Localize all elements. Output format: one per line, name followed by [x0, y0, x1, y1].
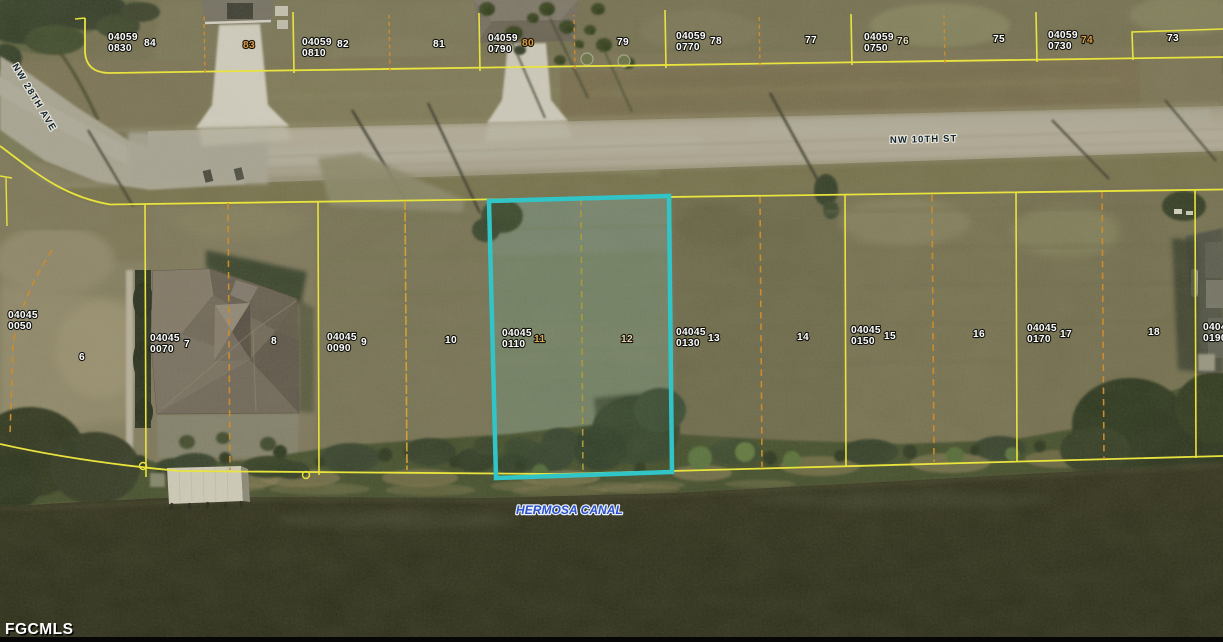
- svg-text:0110: 0110: [502, 339, 525, 350]
- svg-text:81: 81: [433, 39, 445, 50]
- svg-text:7: 7: [184, 339, 190, 350]
- svg-text:04045: 04045: [676, 327, 706, 338]
- svg-text:04059: 04059: [864, 32, 894, 43]
- svg-text:76: 76: [897, 36, 909, 47]
- svg-text:83: 83: [243, 40, 255, 51]
- svg-text:13: 13: [708, 333, 720, 344]
- svg-text:0170: 0170: [1027, 334, 1051, 345]
- svg-text:12: 12: [621, 334, 633, 345]
- svg-text:0830: 0830: [108, 43, 132, 54]
- svg-text:04059: 04059: [1048, 30, 1078, 41]
- svg-text:0090: 0090: [327, 343, 351, 354]
- svg-text:84: 84: [144, 38, 156, 49]
- svg-text:0130: 0130: [676, 338, 700, 349]
- svg-text:16: 16: [973, 329, 985, 340]
- svg-text:82: 82: [337, 39, 349, 50]
- svg-text:15: 15: [884, 331, 896, 342]
- svg-text:HERMOSA CANAL: HERMOSA CANAL: [516, 503, 623, 517]
- svg-text:04045: 04045: [1203, 322, 1223, 333]
- svg-text:6: 6: [79, 352, 85, 363]
- svg-text:77: 77: [805, 35, 817, 46]
- svg-text:0150: 0150: [851, 336, 875, 347]
- svg-text:14: 14: [797, 332, 809, 343]
- svg-text:17: 17: [1060, 329, 1072, 340]
- svg-text:9: 9: [361, 337, 367, 348]
- svg-text:0750: 0750: [864, 43, 888, 54]
- svg-text:04045: 04045: [851, 325, 881, 336]
- svg-text:0810: 0810: [302, 48, 326, 59]
- svg-text:79: 79: [617, 37, 629, 48]
- svg-text:74: 74: [1081, 35, 1093, 46]
- svg-text:80: 80: [522, 38, 534, 49]
- svg-text:18: 18: [1148, 327, 1160, 338]
- svg-text:04059: 04059: [108, 32, 138, 43]
- svg-text:0050: 0050: [8, 321, 32, 332]
- svg-text:FGCMLS: FGCMLS: [5, 621, 73, 638]
- svg-text:0190: 0190: [1203, 333, 1223, 344]
- svg-text:04059: 04059: [676, 31, 706, 42]
- svg-text:04045: 04045: [327, 332, 357, 343]
- svg-text:04045: 04045: [8, 310, 38, 321]
- svg-text:0070: 0070: [150, 344, 174, 355]
- svg-text:04045: 04045: [502, 328, 532, 339]
- svg-text:78: 78: [710, 36, 722, 47]
- svg-text:11: 11: [534, 334, 545, 345]
- svg-text:75: 75: [993, 34, 1005, 45]
- svg-text:0770: 0770: [676, 42, 700, 53]
- svg-text:73: 73: [1167, 33, 1179, 44]
- svg-text:0730: 0730: [1048, 41, 1072, 52]
- svg-text:04059: 04059: [488, 33, 518, 44]
- svg-text:10: 10: [445, 335, 457, 346]
- svg-text:8: 8: [271, 336, 277, 347]
- svg-text:0790: 0790: [488, 44, 512, 55]
- svg-text:04045: 04045: [150, 333, 180, 344]
- svg-text:04045: 04045: [1027, 323, 1057, 334]
- svg-text:NW 10TH ST: NW 10TH ST: [890, 133, 958, 146]
- svg-text:04059: 04059: [302, 37, 332, 48]
